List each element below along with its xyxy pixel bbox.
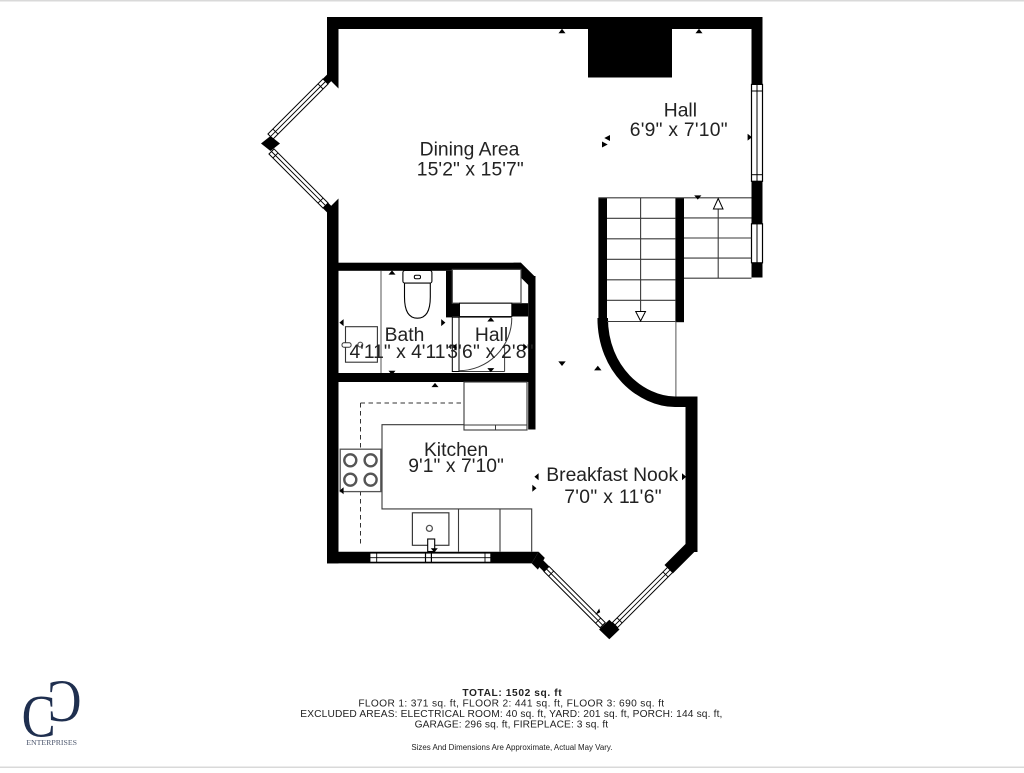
svg-text:ENTERPRISES: ENTERPRISES [26, 738, 77, 747]
svg-text:4'11" x 4'11": 4'11" x 4'11" [349, 342, 452, 363]
svg-text:EXCLUDED AREAS: ELECTRICAL ROO: EXCLUDED AREAS: ELECTRICAL ROOM: 40 sq. … [300, 709, 722, 720]
svg-text:15'2" x 15'7": 15'2" x 15'7" [417, 159, 524, 180]
svg-text:C: C [48, 667, 82, 734]
svg-text:Breakfast Nook: Breakfast Nook [546, 465, 678, 486]
svg-text:9'1" x 7'10": 9'1" x 7'10" [408, 456, 504, 477]
svg-text:6'9" x 7'10": 6'9" x 7'10" [630, 120, 728, 141]
svg-text:FLOOR 1: 371 sq. ft, FLOOR 2:: FLOOR 1: 371 sq. ft, FLOOR 2: 441 sq. ft… [358, 698, 664, 709]
svg-text:3'6" x 2'8": 3'6" x 2'8" [447, 342, 534, 363]
svg-text:Sizes And Dimensions Are Appro: Sizes And Dimensions Are Approximate, Ac… [411, 743, 612, 752]
svg-text:7'0" x 11'6": 7'0" x 11'6" [564, 487, 662, 508]
svg-text:Hall: Hall [664, 101, 697, 122]
svg-text:TOTAL: 1502 sq. ft: TOTAL: 1502 sq. ft [462, 688, 562, 699]
svg-text:Dining Area: Dining Area [420, 140, 520, 161]
svg-text:GARAGE: 296 sq. ft, FIREPLACE:: GARAGE: 296 sq. ft, FIREPLACE: 3 sq. ft [415, 719, 609, 730]
